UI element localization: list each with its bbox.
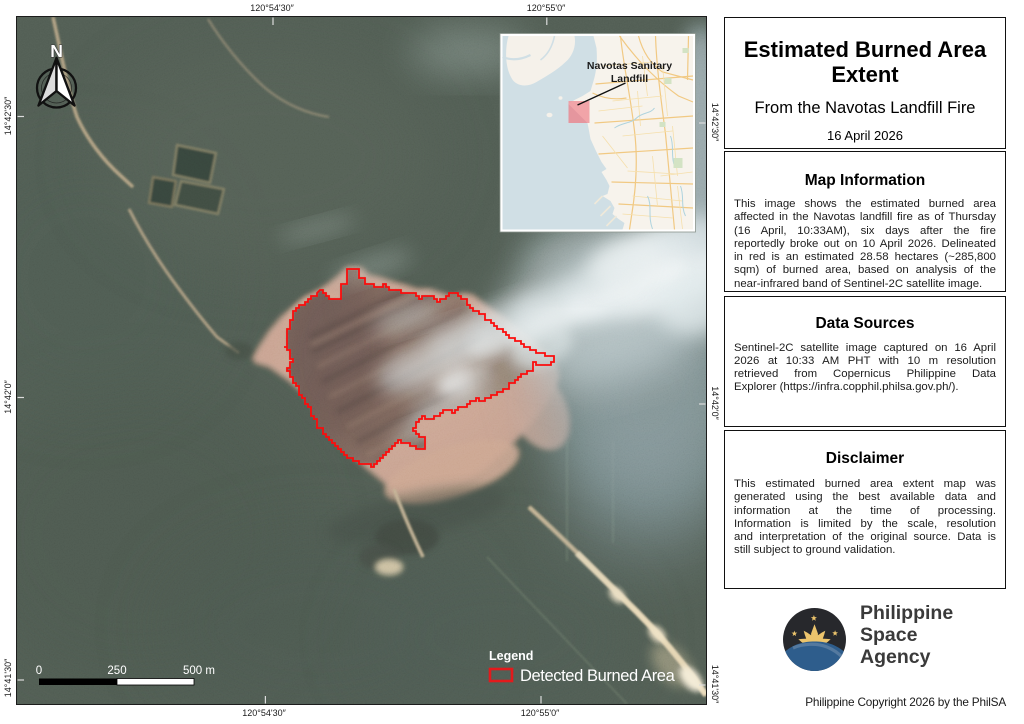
svg-text:Navotas Sanitary: Navotas Sanitary [587,60,672,72]
svg-text:N: N [50,41,63,61]
svg-text:Legend: Legend [489,649,533,663]
svg-text:0: 0 [36,665,42,677]
svg-text:250: 250 [107,665,126,677]
svg-text:Detected Burned Area: Detected Burned Area [520,667,676,685]
svg-text:Landfill: Landfill [611,73,648,85]
svg-text:500 m: 500 m [183,665,215,677]
